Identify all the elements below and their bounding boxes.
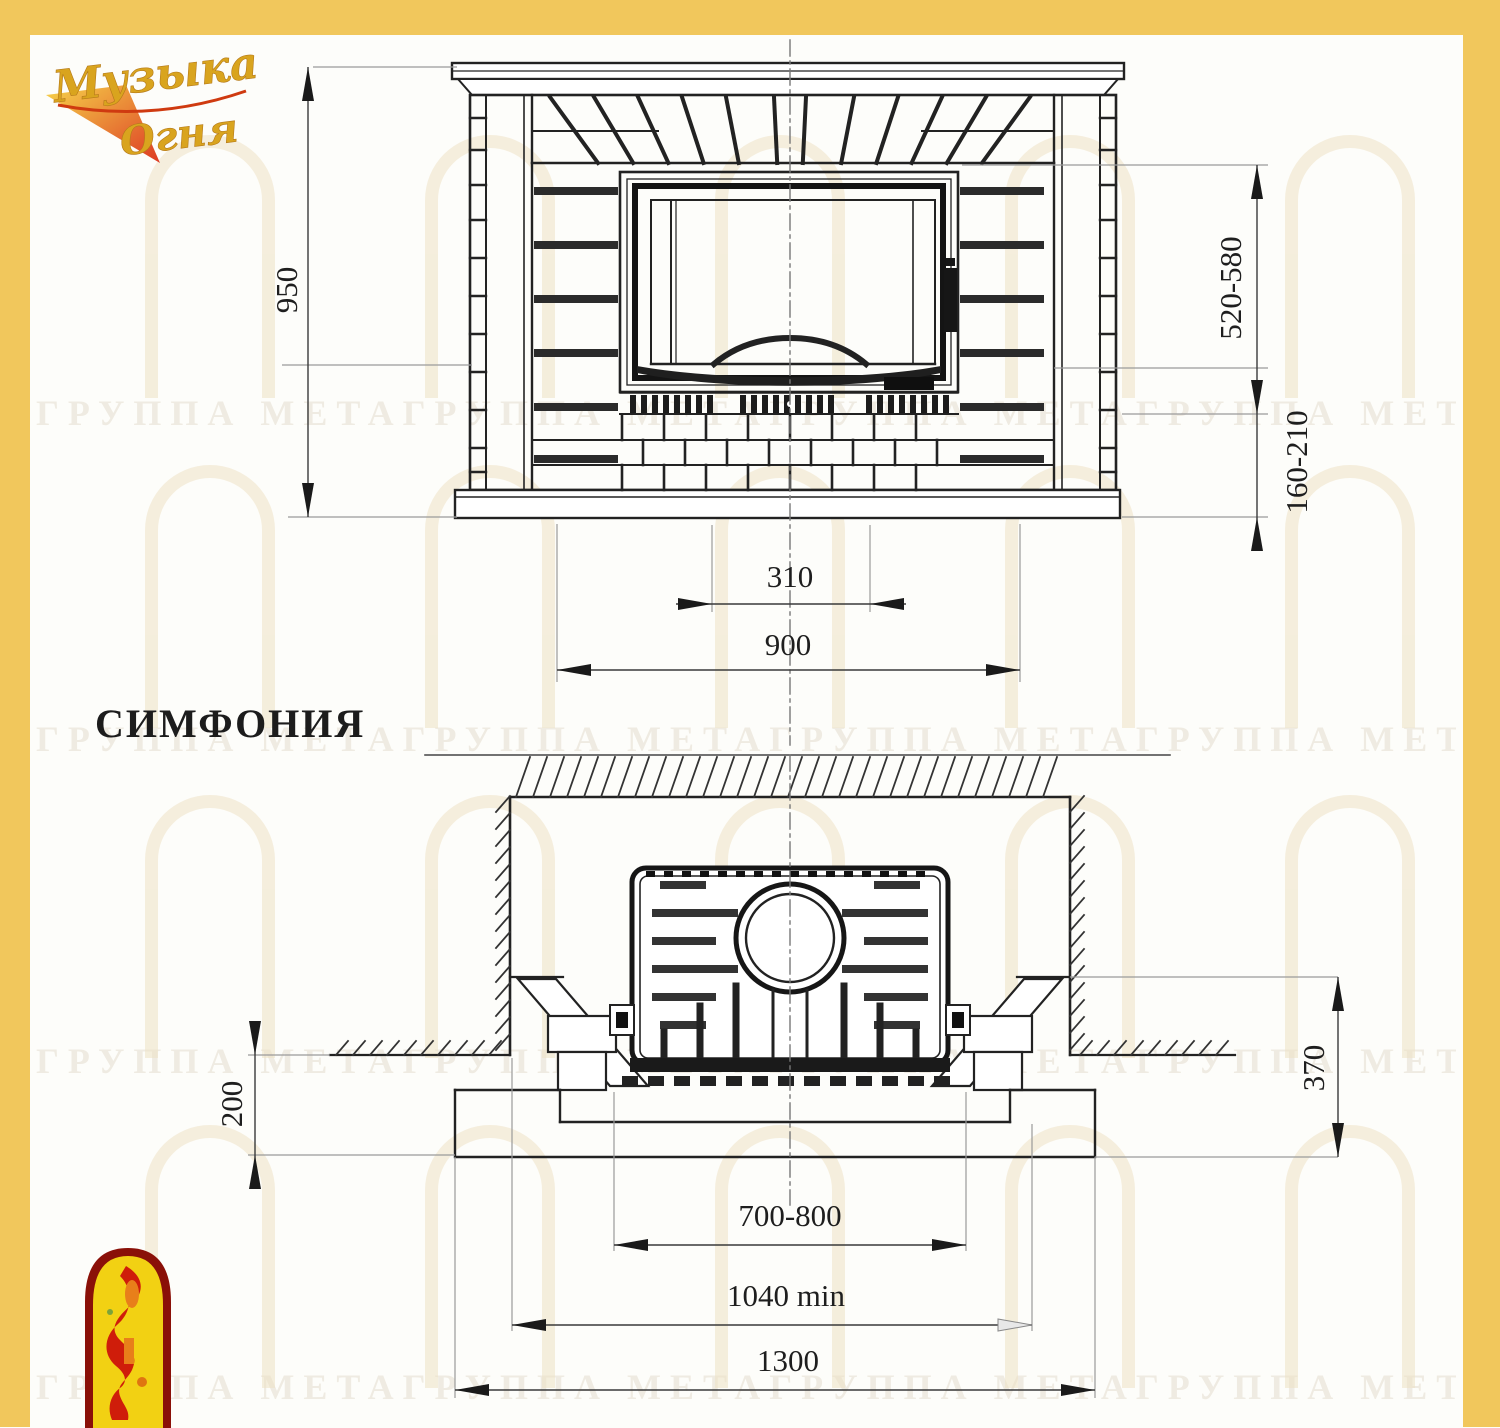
emblem-flame-accent — [124, 1338, 134, 1364]
dim-hearth-projection: 200 — [215, 1034, 249, 1174]
dim-opening-height: 520-580 — [1214, 218, 1248, 358]
logo-word-1: Музыка — [48, 38, 261, 114]
company-logo: Музыка Огня — [28, 33, 278, 183]
model-title: СИМФОНИЯ — [95, 700, 365, 747]
emblem-flame-accent — [125, 1280, 139, 1308]
dim-overall-width-front: 900 — [718, 628, 858, 662]
yellow-border-right — [1463, 0, 1500, 1427]
dim-overall-width-plan: 1300 — [718, 1344, 858, 1378]
dim-firebox-width: 700-800 — [720, 1199, 860, 1233]
yellow-border-top — [0, 0, 1500, 35]
emblem-spark — [137, 1377, 147, 1387]
yellow-border-left — [0, 0, 30, 1427]
plan-view — [330, 755, 1235, 1205]
dim-niche-width-min: 1040 min — [686, 1279, 886, 1313]
dim-overall-height: 950 — [270, 220, 304, 360]
dim-vent-width: 310 — [720, 560, 860, 594]
dim-portal-depth: 370 — [1297, 998, 1331, 1138]
emblem-spark — [107, 1309, 113, 1315]
flame-emblem — [80, 1242, 176, 1428]
dim-hearth-height: 160-210 — [1280, 392, 1314, 532]
